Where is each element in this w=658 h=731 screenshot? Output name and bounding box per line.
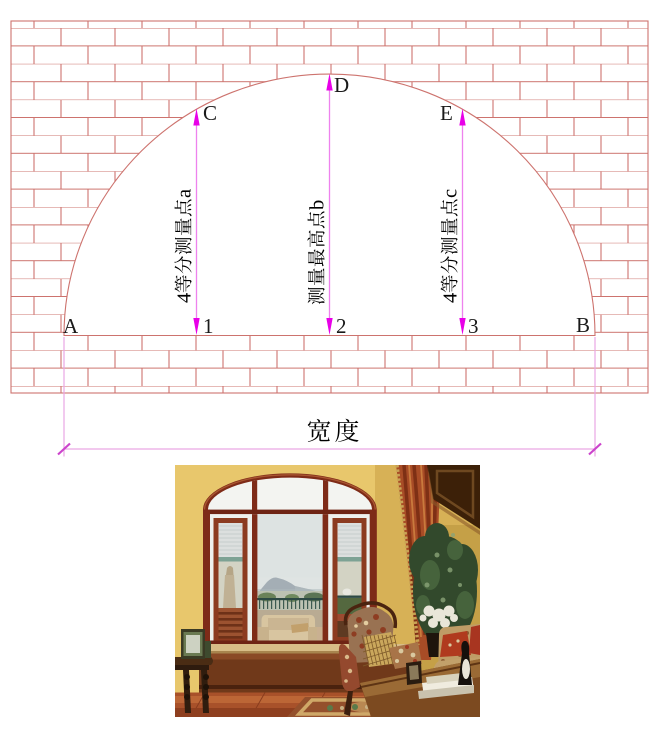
svg-text:D: D — [334, 73, 349, 97]
svg-text:A: A — [63, 314, 79, 338]
svg-text:c: c — [440, 189, 462, 198]
svg-text:B: B — [576, 313, 590, 337]
svg-text:b: b — [307, 200, 329, 210]
svg-text:4: 4 — [174, 293, 196, 303]
svg-text:1: 1 — [203, 314, 214, 338]
svg-text:C: C — [203, 101, 217, 125]
svg-text:3: 3 — [468, 314, 479, 338]
svg-text:4: 4 — [440, 293, 462, 303]
svg-text:a: a — [174, 189, 196, 198]
svg-text:2: 2 — [336, 314, 347, 338]
svg-text:E: E — [440, 101, 453, 125]
